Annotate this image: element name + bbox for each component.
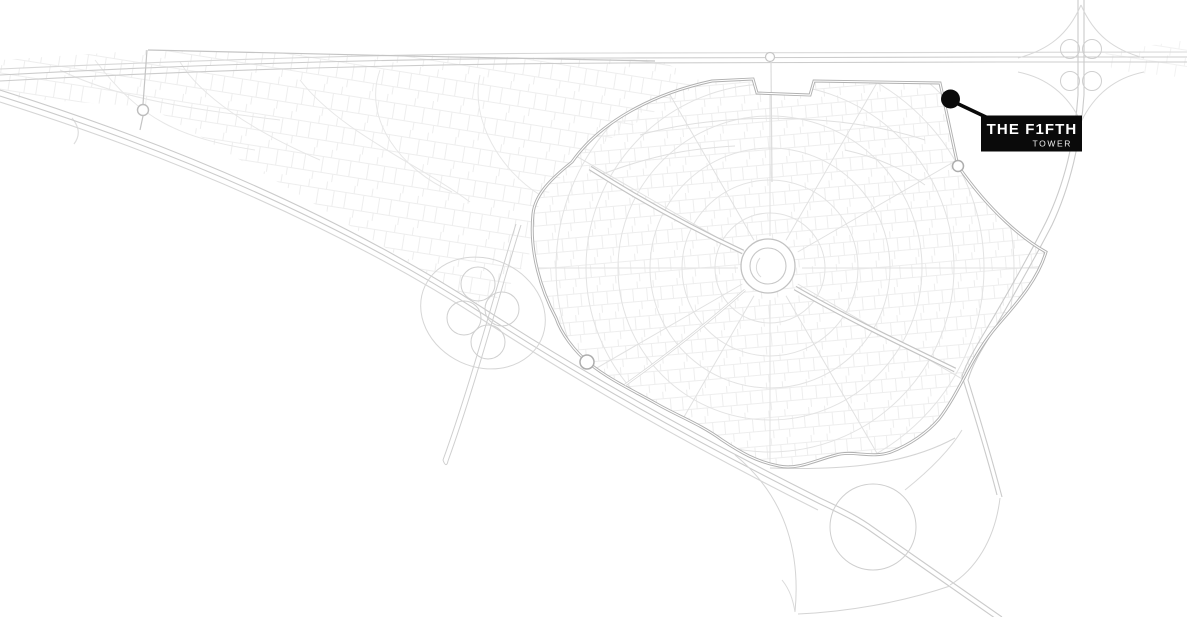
roundabout-southwest	[580, 355, 594, 369]
location-map-page: THE F1FTH TOWER	[0, 0, 1187, 617]
roundabout-top	[766, 53, 775, 62]
callout-title: THE F1FTH	[987, 121, 1078, 138]
roundabout-northwest	[138, 105, 149, 116]
roundabout-east	[953, 161, 964, 172]
marker-dot	[941, 90, 960, 109]
central-roundabout	[741, 239, 795, 293]
site-map: THE F1FTH TOWER	[0, 0, 1187, 617]
callout-subtitle: TOWER	[1033, 139, 1072, 149]
